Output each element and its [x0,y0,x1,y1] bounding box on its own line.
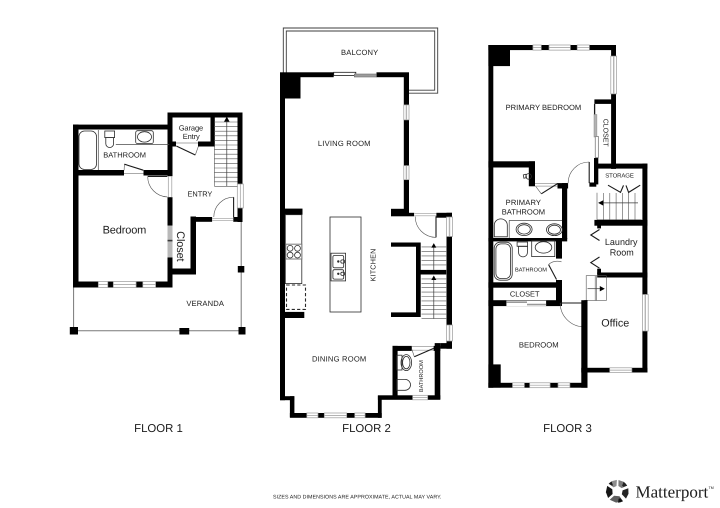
svg-text:ENTRY: ENTRY [187,190,212,199]
svg-text:Office: Office [601,317,629,329]
svg-text:Laundry: Laundry [605,237,638,247]
svg-text:BATHROOM: BATHROOM [103,150,146,159]
svg-text:BATHROOM: BATHROOM [419,360,425,392]
svg-text:PRIMARY BEDROOM: PRIMARY BEDROOM [506,103,582,112]
svg-text:CLOSET: CLOSET [601,119,608,148]
svg-text:BEDROOM: BEDROOM [519,340,559,349]
svg-text:Bedroom: Bedroom [103,225,147,237]
svg-text:Matterport: Matterport [636,482,709,501]
svg-text:Entry: Entry [183,132,200,141]
svg-text:TM: TM [709,486,714,490]
svg-text:LIVING ROOM: LIVING ROOM [318,139,371,148]
svg-text:Room: Room [610,247,634,257]
svg-text:BATHROOM: BATHROOM [515,268,547,274]
svg-text:CLOSET: CLOSET [510,289,540,298]
svg-text:STORAGE: STORAGE [605,173,634,180]
svg-text:FLOOR 2: FLOOR 2 [342,423,391,435]
svg-text:BATHROOM: BATHROOM [502,208,545,217]
svg-text:BALCONY: BALCONY [341,48,378,57]
svg-text:KITCHEN: KITCHEN [368,249,377,282]
svg-text:VERANDA: VERANDA [186,299,225,308]
svg-text:DINING ROOM: DINING ROOM [312,355,367,364]
svg-text:Closet: Closet [174,231,186,261]
svg-text:FLOOR 3: FLOOR 3 [543,423,592,435]
svg-text:SIZES AND DIMENSIONS ARE APPRO: SIZES AND DIMENSIONS ARE APPROXIMATE, AC… [273,495,442,501]
svg-text:FLOOR 1: FLOOR 1 [134,423,183,435]
svg-text:PRIMARY: PRIMARY [506,198,542,207]
